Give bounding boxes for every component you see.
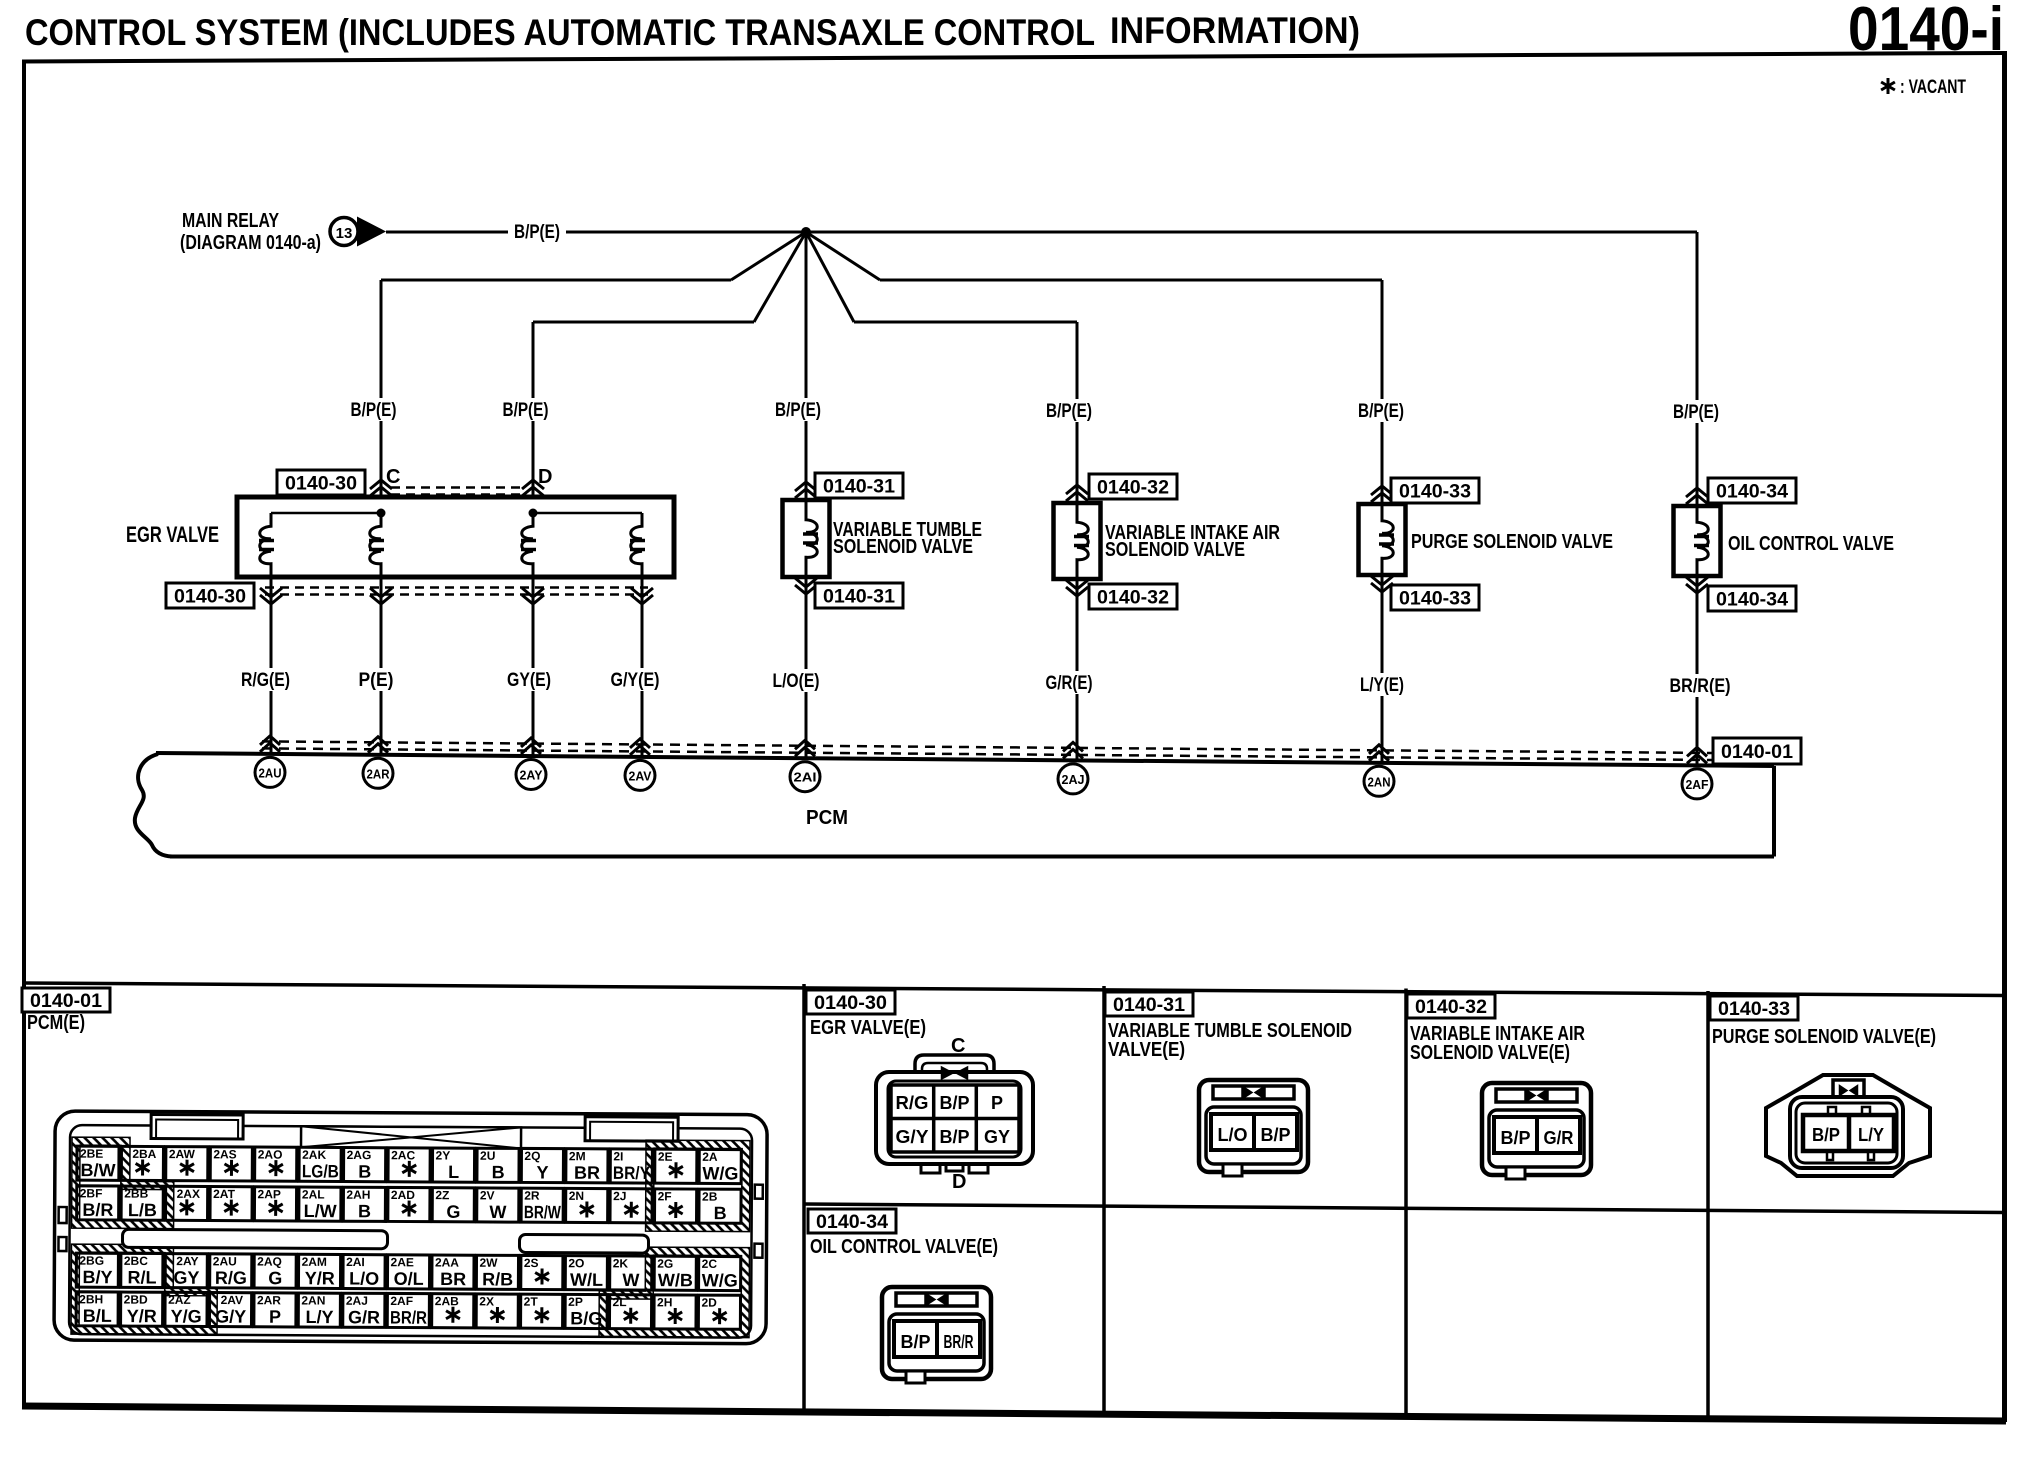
- svg-text:2AR: 2AR: [367, 767, 390, 781]
- svg-text:W/L: W/L: [570, 1270, 603, 1290]
- svg-text:Y: Y: [537, 1163, 549, 1183]
- svg-text:G/R(E): G/R(E): [1046, 673, 1093, 694]
- svg-text:Y/R: Y/R: [305, 1268, 335, 1288]
- svg-text:SOLENOID VALVE: SOLENOID VALVE: [833, 536, 973, 558]
- svg-text:R/G: R/G: [896, 1093, 929, 1113]
- svg-text:L: L: [448, 1162, 459, 1182]
- svg-text:O/L: O/L: [394, 1269, 424, 1289]
- svg-text:PURGE SOLENOID VALVE(E): PURGE SOLENOID VALVE(E): [1712, 1026, 1936, 1048]
- svg-text:SOLENOID VALVE: SOLENOID VALVE: [1105, 539, 1245, 561]
- svg-text:0140-32: 0140-32: [1415, 997, 1487, 1018]
- svg-text:2N: 2N: [569, 1189, 584, 1203]
- svg-text:B/P(E): B/P(E): [1358, 401, 1404, 422]
- svg-text:2AS: 2AS: [213, 1147, 236, 1161]
- svg-text:2AG: 2AG: [347, 1148, 372, 1162]
- svg-text:L/O(E): L/O(E): [773, 671, 820, 692]
- svg-text:W/G: W/G: [702, 1163, 738, 1183]
- svg-text:G: G: [268, 1268, 282, 1288]
- svg-text:0140-33: 0140-33: [1399, 588, 1471, 609]
- svg-text:2E: 2E: [658, 1150, 673, 1164]
- svg-text:2F: 2F: [658, 1189, 672, 1203]
- svg-text:D: D: [952, 1171, 966, 1193]
- svg-text:2O: 2O: [568, 1256, 584, 1270]
- svg-text:L/O: L/O: [349, 1269, 379, 1289]
- svg-text:2BC: 2BC: [124, 1254, 148, 1268]
- svg-text:SOLENOID VALVE(E): SOLENOID VALVE(E): [1410, 1042, 1570, 1064]
- svg-text:0140-01: 0140-01: [1721, 742, 1793, 763]
- svg-text:2M: 2M: [569, 1149, 586, 1163]
- svg-text:B/P(E): B/P(E): [503, 400, 549, 421]
- svg-text:2AE: 2AE: [391, 1255, 414, 1269]
- svg-text:2J: 2J: [613, 1189, 626, 1203]
- svg-text:0140-34: 0140-34: [1716, 589, 1788, 610]
- svg-text:PCM(E): PCM(E): [27, 1012, 85, 1034]
- svg-text:2K: 2K: [613, 1256, 629, 1270]
- svg-text:R/L: R/L: [127, 1267, 156, 1287]
- svg-text:2AP: 2AP: [258, 1187, 281, 1201]
- svg-text:BR: BR: [440, 1269, 466, 1289]
- svg-text:2B: 2B: [702, 1190, 718, 1204]
- svg-text:2AR: 2AR: [257, 1293, 281, 1307]
- svg-text:: VACANT: : VACANT: [1900, 77, 1966, 98]
- svg-text:P: P: [269, 1307, 281, 1327]
- svg-text:2V: 2V: [480, 1188, 495, 1202]
- svg-text:2AA: 2AA: [435, 1255, 459, 1269]
- svg-text:PCM: PCM: [806, 807, 848, 829]
- svg-text:0140-32: 0140-32: [1097, 477, 1169, 498]
- svg-text:2BD: 2BD: [124, 1293, 148, 1307]
- svg-text:13: 13: [336, 225, 353, 242]
- svg-text:B/G: B/G: [570, 1308, 602, 1328]
- svg-text:B/Y: B/Y: [82, 1267, 112, 1287]
- svg-text:2AI: 2AI: [346, 1255, 365, 1269]
- svg-text:B: B: [492, 1162, 505, 1182]
- svg-text:B/P(E): B/P(E): [514, 222, 560, 243]
- svg-text:2AT: 2AT: [213, 1187, 236, 1201]
- svg-text:B/R: B/R: [82, 1200, 113, 1220]
- svg-text:2Y: 2Y: [436, 1148, 451, 1162]
- svg-text:0140-33: 0140-33: [1718, 999, 1790, 1020]
- svg-text:0140-01: 0140-01: [30, 991, 102, 1012]
- svg-text:2AB: 2AB: [435, 1294, 459, 1308]
- svg-text:2AD: 2AD: [391, 1188, 415, 1202]
- svg-text:0140-32: 0140-32: [1097, 587, 1169, 608]
- svg-text:(DIAGRAM 0140-a): (DIAGRAM 0140-a): [180, 232, 321, 254]
- svg-text:0140-31: 0140-31: [1113, 995, 1185, 1016]
- svg-text:2BG: 2BG: [79, 1254, 104, 1268]
- svg-text:D: D: [538, 466, 552, 488]
- svg-text:L/B: L/B: [128, 1200, 157, 1220]
- svg-text:2AN: 2AN: [301, 1293, 325, 1307]
- svg-text:Y/R: Y/R: [127, 1306, 157, 1326]
- svg-text:2AW: 2AW: [169, 1147, 196, 1161]
- svg-text:OIL CONTROL VALVE(E): OIL CONTROL VALVE(E): [810, 1236, 998, 1258]
- svg-text:GY: GY: [984, 1127, 1010, 1147]
- svg-text:B: B: [714, 1203, 727, 1223]
- svg-text:2AJ: 2AJ: [1062, 773, 1085, 787]
- svg-text:2AC: 2AC: [391, 1148, 415, 1162]
- svg-text:CONTROL SYSTEM (INCLUDES AUTOM: CONTROL SYSTEM (INCLUDES AUTOMATIC TRANS…: [25, 12, 1095, 53]
- svg-text:B/P(E): B/P(E): [1673, 402, 1719, 423]
- svg-text:BR/R(E): BR/R(E): [1670, 676, 1731, 697]
- svg-text:L/Y(E): L/Y(E): [1360, 675, 1404, 696]
- svg-text:B/L: B/L: [83, 1306, 112, 1326]
- svg-text:2BA: 2BA: [132, 1147, 156, 1161]
- svg-text:2AK: 2AK: [302, 1148, 326, 1162]
- svg-text:0140-34: 0140-34: [816, 1212, 888, 1233]
- svg-text:VALVE(E): VALVE(E): [1108, 1039, 1185, 1061]
- svg-text:P: P: [991, 1093, 1003, 1113]
- svg-text:2AF: 2AF: [390, 1294, 413, 1308]
- svg-text:2AY: 2AY: [520, 769, 544, 783]
- svg-text:2AF: 2AF: [1686, 778, 1709, 792]
- svg-text:R/G: R/G: [215, 1268, 247, 1288]
- svg-text:PURGE SOLENOID VALVE: PURGE SOLENOID VALVE: [1411, 531, 1613, 553]
- svg-text:L/Y: L/Y: [306, 1307, 334, 1327]
- svg-text:BR/Y: BR/Y: [613, 1163, 650, 1183]
- svg-text:R/G(E): R/G(E): [241, 670, 290, 691]
- svg-text:R/B: R/B: [482, 1269, 513, 1289]
- svg-text:2AU: 2AU: [259, 766, 282, 780]
- svg-text:2BH: 2BH: [79, 1292, 103, 1306]
- svg-text:2AX: 2AX: [177, 1187, 200, 1201]
- svg-text:2AN: 2AN: [1368, 775, 1391, 789]
- svg-text:0140-34: 0140-34: [1716, 481, 1788, 502]
- svg-text:2U: 2U: [480, 1149, 495, 1163]
- svg-text:2AO: 2AO: [258, 1148, 283, 1162]
- svg-text:G/Y(E): G/Y(E): [611, 670, 660, 691]
- svg-text:2AV: 2AV: [221, 1293, 244, 1307]
- svg-text:Y/G: Y/G: [171, 1306, 202, 1326]
- svg-text:B/P: B/P: [940, 1093, 970, 1113]
- svg-text:B/P: B/P: [1501, 1128, 1531, 1148]
- svg-text:B/P(E): B/P(E): [351, 400, 397, 421]
- svg-text:2S: 2S: [524, 1256, 539, 1270]
- svg-text:B/W: B/W: [81, 1160, 116, 1180]
- svg-text:0140-31: 0140-31: [823, 586, 895, 607]
- svg-text:2C: 2C: [702, 1257, 718, 1271]
- svg-text:C: C: [386, 466, 400, 488]
- svg-text:GY(E): GY(E): [507, 670, 551, 691]
- svg-text:2AU: 2AU: [213, 1254, 237, 1268]
- svg-text:2AH: 2AH: [346, 1188, 370, 1202]
- svg-text:OIL CONTROL VALVE: OIL CONTROL VALVE: [1728, 533, 1894, 555]
- svg-text:2T: 2T: [524, 1295, 539, 1309]
- svg-text:G/R: G/R: [1544, 1128, 1574, 1148]
- svg-text:0140-31: 0140-31: [823, 476, 895, 497]
- svg-text:2A: 2A: [702, 1150, 718, 1164]
- svg-text:2AV: 2AV: [629, 769, 653, 783]
- svg-text:LG/B: LG/B: [302, 1161, 339, 1181]
- svg-text:MAIN RELAY: MAIN RELAY: [182, 210, 280, 232]
- svg-text:L/Y: L/Y: [1858, 1125, 1884, 1145]
- svg-text:B/P: B/P: [1812, 1125, 1840, 1145]
- svg-text:2AQ: 2AQ: [257, 1255, 282, 1269]
- svg-text:BR/R: BR/R: [944, 1332, 974, 1352]
- svg-text:B/P(E): B/P(E): [775, 400, 821, 421]
- svg-text:2BE: 2BE: [80, 1147, 103, 1161]
- svg-text:G/Y: G/Y: [215, 1307, 246, 1327]
- svg-text:P(E): P(E): [359, 670, 394, 691]
- svg-text:B/P: B/P: [1261, 1125, 1291, 1145]
- svg-text:2AI: 2AI: [794, 771, 817, 785]
- svg-text:2Q: 2Q: [524, 1149, 540, 1163]
- svg-text:B/P: B/P: [901, 1332, 931, 1352]
- svg-text:2G: 2G: [657, 1257, 673, 1271]
- svg-text:2AY: 2AY: [176, 1254, 198, 1268]
- svg-text:BR: BR: [574, 1163, 600, 1183]
- svg-text:2AM: 2AM: [302, 1255, 327, 1269]
- svg-text:0140-30: 0140-30: [285, 473, 357, 494]
- svg-text:W/G: W/G: [702, 1270, 738, 1290]
- svg-text:G/Y: G/Y: [896, 1127, 929, 1147]
- svg-text:L/O: L/O: [1218, 1125, 1248, 1145]
- svg-text:2H: 2H: [657, 1295, 672, 1309]
- svg-text:0140-30: 0140-30: [814, 993, 887, 1014]
- svg-text:2R: 2R: [524, 1189, 540, 1203]
- svg-text:2D: 2D: [701, 1296, 717, 1310]
- svg-text:B/P(E): B/P(E): [1046, 401, 1092, 422]
- svg-text:2BF: 2BF: [80, 1186, 103, 1200]
- svg-text:INFORMATION): INFORMATION): [1110, 10, 1360, 51]
- svg-text:0140-30: 0140-30: [174, 586, 246, 607]
- svg-text:BR/W: BR/W: [524, 1202, 561, 1222]
- svg-text:W: W: [489, 1202, 506, 1222]
- svg-text:B/P: B/P: [940, 1127, 970, 1147]
- svg-text:2W: 2W: [479, 1256, 498, 1270]
- svg-text:W: W: [622, 1270, 639, 1290]
- svg-text:G/R: G/R: [348, 1307, 380, 1327]
- svg-text:B: B: [358, 1201, 371, 1221]
- svg-text:W/B: W/B: [658, 1270, 693, 1290]
- svg-text:2Z: 2Z: [435, 1188, 449, 1202]
- svg-text:2AJ: 2AJ: [346, 1294, 368, 1308]
- svg-text:B: B: [358, 1162, 371, 1182]
- svg-text:2X: 2X: [479, 1294, 494, 1308]
- svg-text:2I: 2I: [613, 1149, 623, 1163]
- svg-text:L/W: L/W: [304, 1201, 337, 1221]
- svg-text:0140-33: 0140-33: [1399, 481, 1471, 502]
- svg-text:G: G: [446, 1202, 460, 1222]
- svg-text:2P: 2P: [568, 1295, 583, 1309]
- svg-text:BR/R: BR/R: [390, 1307, 427, 1327]
- svg-text:EGR VALVE: EGR VALVE: [126, 522, 219, 547]
- svg-text:GY: GY: [173, 1268, 199, 1288]
- svg-text:2AL: 2AL: [302, 1187, 325, 1201]
- svg-text:EGR VALVE(E): EGR VALVE(E): [810, 1017, 926, 1039]
